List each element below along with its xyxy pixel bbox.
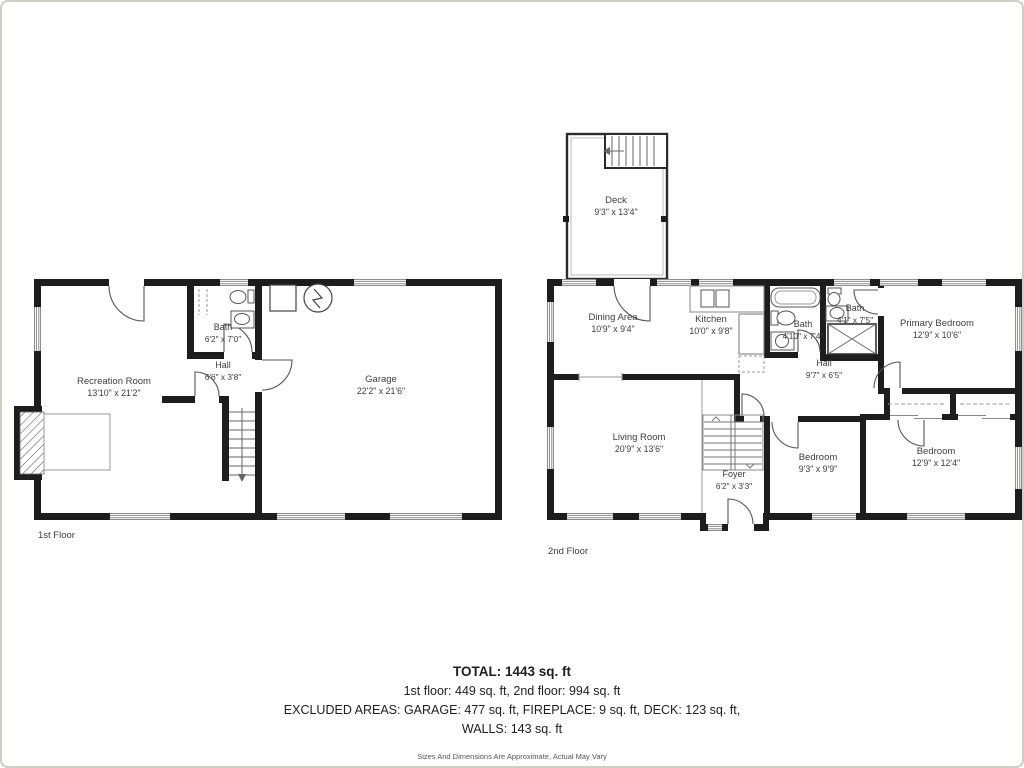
room-label-bath-2f-a: Bath 4'10" x 7'4"	[783, 319, 824, 341]
room-label-bath-2f-b: Bath 4'1" x 7'5"	[837, 303, 873, 325]
fridge-icon	[739, 314, 764, 354]
room-label-deck: Deck 9'3" x 13'4"	[594, 195, 637, 218]
floor-areas: 1st floor: 449 sq. ft, 2nd floor: 994 sq…	[2, 682, 1022, 701]
excluded-areas: EXCLUDED AREAS: GARAGE: 477 sq. ft, FIRE…	[2, 701, 1022, 720]
room-label-bedroom-east: Bedroom 12'9" x 12'4"	[912, 446, 960, 469]
walls-area: WALLS: 143 sq. ft	[2, 720, 1022, 739]
floorplan-canvas	[2, 2, 1024, 768]
disclaimer: Sizes And Dimensions Are Approximate, Ac…	[2, 752, 1022, 761]
floor-label-2nd: 2nd Floor	[548, 546, 588, 557]
cased-opening	[579, 373, 622, 381]
toilet-icon	[248, 290, 254, 303]
room-label-bedroom-west: Bedroom 9'3" x 9'9"	[799, 452, 838, 475]
floor-plan-page: Recreation Room 13'10" x 21'2" Bath 6'2"…	[0, 0, 1024, 768]
room-label-garage: Garage 22'2" x 21'6"	[357, 374, 405, 397]
room-label-hall-2f: Hall 9'7" x 6'5"	[806, 358, 842, 380]
room-label-dining-area: Dining Area 10'9" x 9'4"	[588, 312, 637, 335]
area-summary: TOTAL: 1443 sq. ft 1st floor: 449 sq. ft…	[2, 662, 1022, 761]
room-label-hall-1f: Hall 6'6" x 3'8"	[205, 360, 241, 382]
fireplace-icon	[14, 406, 110, 480]
room-label-foyer: Foyer 6'2" x 3'3"	[716, 469, 752, 491]
first-floor-plan	[14, 279, 502, 520]
garage-appliances	[270, 284, 332, 312]
room-label-living-room: Living Room 20'9" x 13'6"	[613, 432, 666, 455]
stairs-icon	[702, 380, 763, 513]
toilet-icon	[230, 291, 246, 304]
total-area: TOTAL: 1443 sq. ft	[2, 662, 1022, 682]
sink-icon	[716, 290, 729, 307]
appliance-icon	[270, 285, 296, 311]
room-label-primary-bedroom: Primary Bedroom 12'9" x 10'6"	[900, 318, 974, 341]
room-label-bath-1f: Bath 6'2" x 7'0"	[205, 322, 241, 344]
dishwasher-icon	[739, 356, 764, 372]
sink-icon	[701, 290, 714, 307]
stairs-icon	[229, 408, 255, 482]
floor-label-1st: 1st Floor	[38, 530, 75, 541]
water-heater-icon	[304, 284, 332, 312]
first-floor-walls	[34, 279, 502, 520]
room-label-recreation-room: Recreation Room 13'10" x 21'2"	[77, 376, 151, 399]
room-label-kitchen: Kitchen 10'0" x 9'8"	[689, 314, 732, 337]
